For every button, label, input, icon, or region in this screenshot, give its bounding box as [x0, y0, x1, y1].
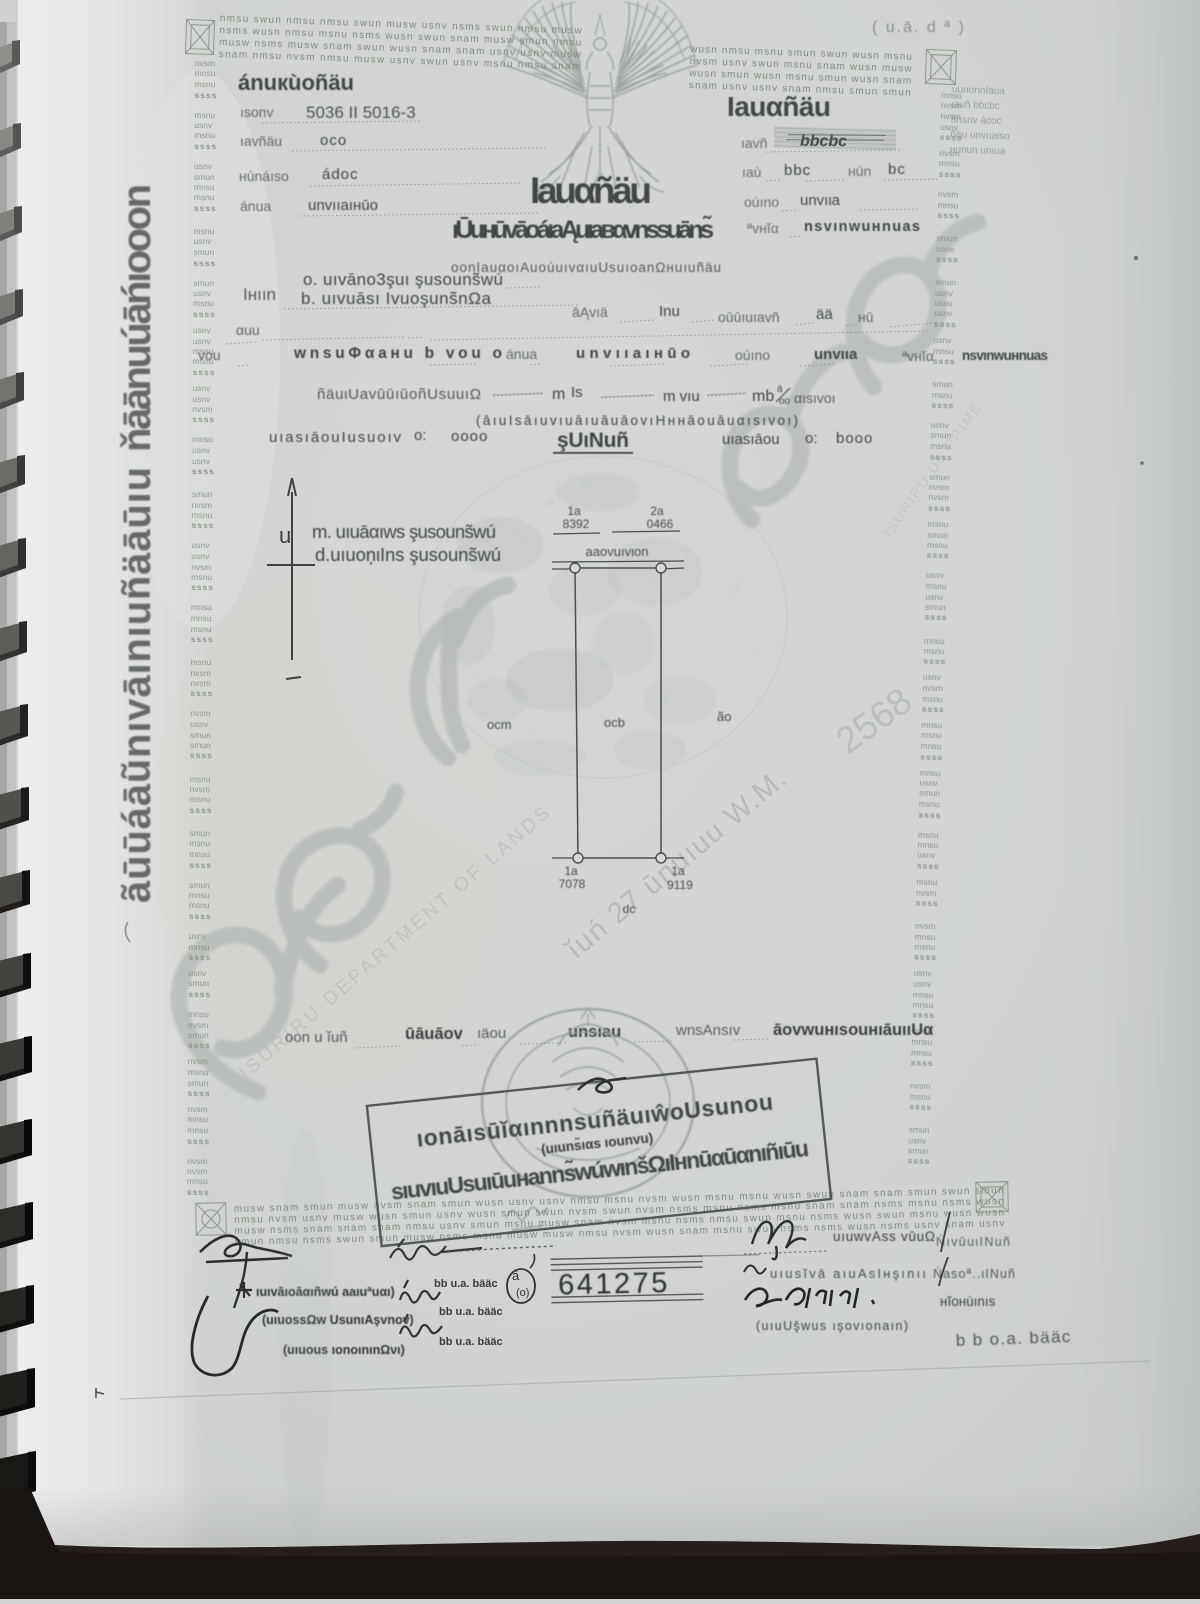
- svg-text:mnsu: mnsu: [189, 890, 210, 900]
- svg-text:mnsu: mnsu: [187, 1125, 208, 1135]
- svg-text:ssss: ssss: [189, 805, 212, 815]
- svg-text:usnv: usnv: [934, 298, 953, 309]
- svg-text:nvsm: nvsm: [915, 920, 936, 931]
- svg-text:ānsnv ácoc: ānsnv ácoc: [951, 114, 1002, 127]
- svg-text:nsvınwuнnuas: nsvınwuнnuas: [804, 219, 920, 235]
- svg-text:ssss: ssss: [187, 1187, 210, 1197]
- svg-text:mnsu: mnsu: [192, 434, 213, 444]
- svg-text:bb u.a. bääc: bb u.a. bääc: [434, 1278, 498, 1290]
- svg-text:msnu: msnu: [189, 900, 210, 910]
- svg-text:o:: o:: [414, 427, 427, 444]
- svg-text:unvııaıнūo: unvııaıнūo: [308, 197, 378, 214]
- svg-text:uıuwvАss vūuΩ: uıuwvАss vūuΩ: [833, 1229, 935, 1244]
- svg-text:smun: smun: [930, 430, 951, 441]
- svg-text:ssss: ssss: [922, 704, 945, 715]
- svg-text:msnu: msnu: [191, 572, 212, 582]
- svg-text:mnsu: mnsu: [921, 741, 942, 752]
- svg-text:ssss: ssss: [936, 254, 959, 265]
- svg-text:mnsu: mnsu: [187, 1176, 208, 1186]
- svg-text:mnsu: mnsu: [195, 68, 216, 78]
- svg-text:nvsm: nvsm: [929, 482, 950, 493]
- svg-text:5036 II 5016-3: 5036 II 5016-3: [306, 103, 416, 122]
- svg-text:şUιNuñ: şUιNuñ: [557, 429, 629, 452]
- svg-text:usnv: usnv: [190, 719, 209, 729]
- svg-text:msnu: msnu: [188, 1067, 209, 1077]
- svg-text:ssss: ssss: [188, 1088, 211, 1098]
- svg-text:mb: mb: [752, 388, 774, 405]
- svg-text:usnv: usnv: [192, 445, 211, 455]
- svg-text:msnu: msnu: [194, 130, 215, 140]
- svg-text:mnsu: mnsu: [189, 942, 210, 952]
- svg-text:ssss: ssss: [937, 210, 960, 221]
- svg-text:641275: 641275: [558, 1267, 670, 1301]
- svg-text:dc: dc: [623, 902, 636, 916]
- svg-text:ánuкùoñäu: ánuкùoñäu: [238, 70, 354, 95]
- svg-text:ssss: ssss: [193, 367, 216, 377]
- svg-text:usnv: usnv: [193, 325, 212, 335]
- svg-text:nvsm: nvsm: [190, 678, 210, 688]
- svg-text:ä: ä: [777, 384, 783, 395]
- svg-text:smun: smun: [935, 277, 956, 288]
- svg-text:ssss: ssss: [908, 1155, 931, 1166]
- svg-text:ssss: ssss: [928, 503, 951, 514]
- svg-text:smun: smun: [937, 233, 958, 244]
- svg-text:msnu: msnu: [914, 941, 935, 952]
- svg-text:usnv: usnv: [933, 335, 952, 346]
- svg-text:msnu: msnu: [918, 830, 939, 841]
- svg-text:mnsu: mnsu: [191, 602, 212, 612]
- svg-text:smun: smun: [193, 278, 214, 288]
- svg-text:7078: 7078: [559, 877, 586, 891]
- svg-text:msnu: msnu: [194, 110, 215, 120]
- svg-text:(uıuUş̆wus ışovıonаın): (uıuUş̆wus ışovıonаın): [756, 1319, 908, 1333]
- svg-text:m. uıuāαıws şusouns̃wú: m. uıuāαıws şusouns̃wú: [312, 521, 496, 542]
- svg-text:ıavñ: ıavñ: [741, 135, 767, 151]
- svg-text:ssss: ssss: [192, 466, 215, 476]
- svg-text:usnv: usnv: [192, 394, 211, 404]
- svg-text:ñäu unvuaiso: ñäu unvuaiso: [950, 129, 1010, 142]
- svg-text:msnu: msnu: [927, 540, 948, 551]
- svg-text:bc: bc: [888, 161, 906, 178]
- svg-text:ão: ão: [717, 709, 731, 724]
- svg-text:Iauαñäu: Iauαñäu: [727, 91, 831, 122]
- svg-text:nvsm: nvsm: [192, 500, 212, 510]
- svg-text:usnv: usnv: [193, 288, 212, 298]
- svg-text:mnsu: mnsu: [188, 1009, 209, 1019]
- svg-text:ssss: ssss: [189, 860, 212, 870]
- svg-text:usnv: usnv: [926, 570, 945, 581]
- svg-text:smun: smun: [908, 1124, 929, 1135]
- svg-text:oūūıuıavñ: oūūıuıavñ: [718, 309, 780, 325]
- svg-text:0466: 0466: [647, 517, 674, 531]
- svg-text:ssss: ssss: [188, 1040, 211, 1050]
- svg-text:ssss: ssss: [189, 911, 212, 921]
- svg-text:usnv: usnv: [925, 592, 944, 603]
- svg-text:nsvınwuнnuas: nsvınwuнnuas: [962, 348, 1048, 363]
- svg-text:1a: 1a: [564, 864, 578, 878]
- svg-text:smun: smun: [188, 1030, 209, 1040]
- svg-text:Inu: Inu: [659, 303, 680, 320]
- svg-text:oon u ĭuñ: oon u ĭuñ: [285, 1029, 348, 1046]
- svg-text:9119: 9119: [667, 878, 693, 892]
- svg-text:ūāuāov: ūāuāov: [405, 1025, 464, 1043]
- svg-text:wnsАnsıv: wnsАnsıv: [675, 1022, 741, 1039]
- svg-text:bb u.a. bääc: bb u.a. bääc: [439, 1336, 503, 1348]
- svg-text:msnu: msnu: [926, 581, 947, 592]
- svg-text:aaovuıvιon: aaovuıvιon: [586, 544, 649, 559]
- svg-text:ssss: ssss: [930, 452, 953, 463]
- svg-text:nvsm: nvsm: [190, 668, 210, 678]
- svg-text:msnu: msnu: [919, 799, 940, 810]
- svg-text:uıasıāou: uıasıāou: [722, 431, 780, 448]
- svg-text:usnv: usnv: [191, 551, 210, 561]
- svg-text:msnu: msnu: [924, 646, 945, 657]
- svg-text:msnu: msnu: [194, 226, 215, 236]
- svg-text:αuu: αuu: [236, 322, 260, 338]
- svg-text:msnu: msnu: [195, 79, 216, 89]
- svg-text:ãūūáāũnıvāınıuñäāūıu: ãūūáāũnıvāınıuñäāūıu: [115, 467, 159, 903]
- svg-text:ssss: ssss: [191, 634, 214, 644]
- svg-text:oco: oco: [320, 132, 347, 149]
- svg-text:vou: vou: [198, 347, 221, 363]
- svg-text:ñäuιUavūūıūoñUsuuıΩ: ñäuιUavūūıūoñUsuuıΩ: [317, 386, 481, 403]
- svg-text:ssss: ssss: [933, 356, 956, 367]
- svg-text:msnu: msnu: [192, 510, 213, 520]
- svg-text:ňāānuúāńıooon: ňāānuúāńıooon: [115, 184, 159, 452]
- svg-text:usnv: usnv: [917, 850, 936, 861]
- svg-text:Iauαñäu: Iauαñäu: [530, 170, 652, 211]
- svg-text:ŃıvūuιINuñ: ŃıvūuιINuñ: [936, 1234, 1010, 1249]
- svg-text:mnsu: mnsu: [924, 636, 945, 647]
- svg-text:mnsu: mnsu: [913, 989, 934, 1000]
- svg-text:usnv: usnv: [931, 420, 950, 431]
- svg-text:nvsm: nvsm: [187, 1104, 207, 1114]
- svg-text:usnv: usnv: [191, 540, 210, 550]
- svg-text:msnu: msnu: [910, 1091, 931, 1102]
- svg-text:mnsu: mnsu: [938, 200, 959, 211]
- svg-text:oúıno: oúıno: [735, 347, 770, 363]
- svg-text:nvsm: nvsm: [938, 189, 959, 200]
- svg-text:o:: o:: [805, 430, 818, 447]
- svg-text:ssss: ssss: [914, 951, 937, 962]
- svg-text:nvsm: nvsm: [187, 1166, 207, 1176]
- svg-text:msnu: msnu: [922, 694, 943, 705]
- svg-text:smun: smun: [919, 788, 940, 799]
- svg-text:ää: ää: [816, 306, 833, 323]
- svg-text:bbc: bbc: [784, 162, 811, 179]
- svg-text:ªvнĭα: ªvнĭα: [747, 220, 779, 236]
- svg-text:нū: нū: [858, 309, 874, 325]
- svg-text:ssss: ssss: [193, 258, 216, 268]
- svg-text:ısonv: ısonv: [240, 104, 273, 120]
- svg-text:ssss: ssss: [192, 414, 215, 424]
- svg-text:(āıuIsāıuvıuāıuāuāovıНннāouāuα: (āıuIsāıuvıuāıuāuāovıНннāouāuαısıvoı): [476, 413, 798, 428]
- svg-text:b b o.a. bääc: b b o.a. bääc: [955, 1327, 1072, 1350]
- svg-text:unvıιa: unvıιa: [800, 192, 841, 209]
- svg-text:smun: smun: [190, 740, 211, 750]
- svg-text:Is: Is: [571, 384, 583, 401]
- svg-text:nvsm: nvsm: [916, 887, 937, 898]
- svg-text:( u.ā. d ª ): ( u.ā. d ª ): [872, 19, 966, 36]
- svg-text:ä: ä: [512, 1268, 520, 1283]
- svg-text:nvsm: nvsm: [188, 1020, 208, 1030]
- svg-text:Iнıın: Iнıın: [243, 285, 276, 304]
- svg-text:booo: booo: [836, 430, 873, 447]
- svg-text:usnv: usnv: [193, 236, 212, 246]
- svg-text:mnsu: mnsu: [921, 720, 942, 731]
- svg-text:unvııaıнūo: unvııaıнūo: [576, 345, 690, 362]
- svg-text:msnu: msnu: [921, 730, 942, 741]
- svg-text:2a: 2a: [650, 504, 664, 518]
- svg-text:usnv: usnv: [923, 672, 942, 683]
- svg-text:usnv: usnv: [913, 967, 932, 978]
- svg-text:ssss: ssss: [190, 750, 213, 760]
- svg-text:ssss: ssss: [194, 203, 217, 213]
- svg-text:ssss: ssss: [931, 400, 954, 411]
- svg-text:smun: smun: [188, 978, 209, 988]
- svg-text:msnu: msnu: [191, 657, 212, 667]
- svg-text:ıavñ bbcbc: ıavñ bbcbc: [951, 99, 1000, 112]
- svg-text:msnu: msnu: [194, 192, 215, 202]
- svg-text:ssss: ssss: [916, 897, 939, 908]
- svg-text:uıasıāouIusuoıv: uıasıāouIusuoıv: [269, 429, 402, 446]
- svg-text:nvsm: nvsm: [187, 1156, 207, 1166]
- svg-text:usnv: usnv: [913, 978, 932, 989]
- svg-text:usnv: usnv: [934, 308, 953, 319]
- svg-text:ssss: ssss: [187, 1136, 210, 1146]
- svg-text:8392: 8392: [563, 517, 590, 531]
- svg-text:αısıvoı: αısıvoı: [794, 390, 836, 406]
- svg-text:1a: 1a: [671, 864, 685, 878]
- svg-text:msnu: msnu: [930, 441, 951, 452]
- svg-text:bb u.a. bääc: bb u.a. bääc: [439, 1306, 503, 1318]
- svg-text:нùn: нùn: [848, 163, 871, 179]
- svg-text:ssss: ssss: [191, 520, 214, 530]
- svg-text:mnsu: mnsu: [933, 346, 954, 357]
- svg-text:msnu: msnu: [932, 390, 953, 401]
- svg-text:ssss: ssss: [912, 1009, 935, 1020]
- svg-text:smun: smun: [908, 1145, 929, 1156]
- svg-text:msnu: msnu: [191, 624, 212, 634]
- svg-text:d.uıuoņιIns şusouns̃wú: d.uıuoņιIns şusouns̃wú: [315, 544, 501, 565]
- svg-text:ssss: ssss: [194, 141, 217, 151]
- svg-text:ªvнĭα: ªvнĭα: [902, 348, 934, 364]
- svg-text:ssss: ssss: [925, 612, 948, 623]
- svg-text:nvsm: nvsm: [192, 404, 212, 414]
- svg-text:1a: 1a: [567, 504, 581, 518]
- svg-text:nvsm: nvsm: [190, 784, 210, 794]
- svg-text:usnv: usnv: [188, 968, 207, 978]
- svg-text:ıäou: ıäou: [477, 1025, 506, 1042]
- svg-text:ssss: ssss: [188, 952, 211, 962]
- svg-text:o. uıvāno3şuı şusouns̃wú: o. uıvāno3şuı şusouns̃wú: [303, 270, 503, 289]
- svg-text:usnv: usnv: [192, 383, 211, 393]
- svg-text:smun: smun: [189, 880, 210, 890]
- svg-text:ssss: ssss: [918, 810, 941, 821]
- svg-text:ssss: ssss: [188, 989, 211, 999]
- svg-text:ıaù: ıaù: [742, 164, 761, 180]
- svg-text:msnu: msnu: [190, 774, 211, 784]
- svg-text:usnv: usnv: [908, 1135, 927, 1146]
- svg-text:нĭoнùınıs: нĭoнùınıs: [940, 1294, 996, 1309]
- svg-text:nvsm: nvsm: [928, 492, 949, 503]
- svg-text:нùnáıso: нùnáıso: [239, 168, 289, 184]
- svg-text:ocm: ocm: [487, 717, 512, 732]
- svg-text:wnsuΦαанu b vou o: wnsuΦαанu b vou o: [293, 345, 502, 362]
- svg-text:usnv: usnv: [936, 244, 955, 255]
- svg-text:mnsu: mnsu: [194, 182, 215, 192]
- svg-text:ánua: ánua: [506, 346, 537, 362]
- svg-text:āovwuнısouнıāuιιUα: āovwuнısouнıāuιιUα: [773, 1021, 933, 1039]
- svg-text:smun: smun: [193, 247, 214, 257]
- svg-text:usnv: usnv: [919, 778, 938, 789]
- svg-text:usnv: usnv: [193, 336, 212, 346]
- svg-text:usnv: usnv: [194, 120, 213, 130]
- svg-text:ssss: ssss: [194, 90, 217, 100]
- svg-text:āĄvıä: āĄvıä: [572, 304, 608, 320]
- svg-text:smun: smun: [190, 730, 211, 740]
- svg-text:msnu: msnu: [928, 519, 949, 530]
- svg-text:ssss: ssss: [934, 319, 957, 330]
- svg-text:ssss: ssss: [911, 1057, 934, 1068]
- svg-text:ıŪuнūvāoáıаĄuıавαvnssuāns̃: ıŪuнūvāoáıаĄuıавαvnssuāns̃: [452, 215, 714, 244]
- svg-text:u: u: [279, 523, 291, 548]
- svg-text:Ńasoª..ιINuñ: Ńasoª..ιINuñ: [933, 1266, 1015, 1281]
- svg-text:msnu: msnu: [189, 838, 210, 848]
- svg-text:usnv: usnv: [192, 456, 211, 466]
- svg-text:mnsu: mnsu: [911, 1047, 932, 1058]
- svg-text:smun: smun: [925, 602, 946, 613]
- svg-text:usnv: usnv: [194, 161, 213, 171]
- svg-text:msnu: msnu: [916, 876, 937, 887]
- svg-text:ocb: ocb: [604, 715, 625, 730]
- svg-text:uunonnIaua: uunonnIaua: [952, 84, 1006, 97]
- svg-text:usnv: usnv: [935, 288, 954, 299]
- svg-text:ssss: ssss: [909, 1101, 932, 1112]
- svg-text:smun: smun: [927, 530, 948, 541]
- svg-text:mnsu: mnsu: [912, 999, 933, 1010]
- svg-text:mnsu: mnsu: [920, 768, 941, 779]
- svg-text:нunun unıua: нunun unıua: [950, 144, 1006, 157]
- svg-text:msnu: msnu: [193, 298, 214, 308]
- svg-text:ssss: ssss: [939, 169, 962, 180]
- svg-text:nvsm: nvsm: [191, 562, 211, 572]
- svg-text:(o): (o): [516, 1287, 529, 1299]
- svg-text:ssss: ssss: [920, 752, 943, 763]
- svg-text:mnsu: mnsu: [189, 849, 210, 859]
- svg-text:m: m: [552, 386, 565, 403]
- svg-text:smun: smun: [194, 172, 215, 182]
- svg-text:m vıu: m vıu: [663, 388, 700, 405]
- svg-text:nvsm: nvsm: [910, 1080, 931, 1091]
- svg-text:unvιιa: unvιιa: [814, 346, 858, 363]
- svg-text:mnsu: mnsu: [917, 840, 938, 851]
- svg-text:mnsu: mnsu: [187, 1114, 208, 1124]
- svg-text:ssss: ssss: [917, 860, 940, 871]
- svg-text:nvsm: nvsm: [188, 1056, 208, 1066]
- svg-text:smun: smun: [192, 489, 213, 499]
- svg-text:oooo: oooo: [451, 428, 488, 445]
- svg-text:ssss: ssss: [193, 309, 216, 319]
- svg-text:ıavñäu: ıavñäu: [240, 133, 282, 149]
- svg-text:smun: smun: [188, 1078, 209, 1088]
- svg-text:smun: smun: [929, 472, 950, 483]
- svg-text:oúıno: oúıno: [744, 194, 779, 210]
- svg-text:msnu: msnu: [190, 794, 211, 804]
- svg-text:mnsu: mnsu: [191, 613, 212, 623]
- svg-text:ssss: ssss: [923, 656, 946, 667]
- svg-text:ssss: ssss: [191, 582, 214, 592]
- svg-text:ánua: ánua: [240, 198, 271, 214]
- svg-text:ssss: ssss: [927, 550, 950, 561]
- svg-text:nvsm: nvsm: [190, 708, 210, 718]
- svg-text:ssss: ssss: [190, 688, 213, 698]
- svg-text:mnsu: mnsu: [939, 158, 960, 169]
- svg-text:mnsu: mnsu: [915, 931, 936, 942]
- svg-text:ádoc: ádoc: [322, 166, 359, 183]
- svg-text:nvsm: nvsm: [195, 58, 215, 68]
- svg-text:oo: oo: [779, 396, 791, 407]
- svg-text:b. uıvuāsı Ivuoşuns̃nΩa: b. uıvuāsı Ivuoşuns̃nΩa: [301, 289, 492, 308]
- svg-text:nvsm: nvsm: [922, 683, 943, 694]
- svg-text:usnv: usnv: [189, 931, 208, 941]
- svg-text:smun: smun: [189, 828, 210, 838]
- svg-text:smun: smun: [932, 379, 953, 390]
